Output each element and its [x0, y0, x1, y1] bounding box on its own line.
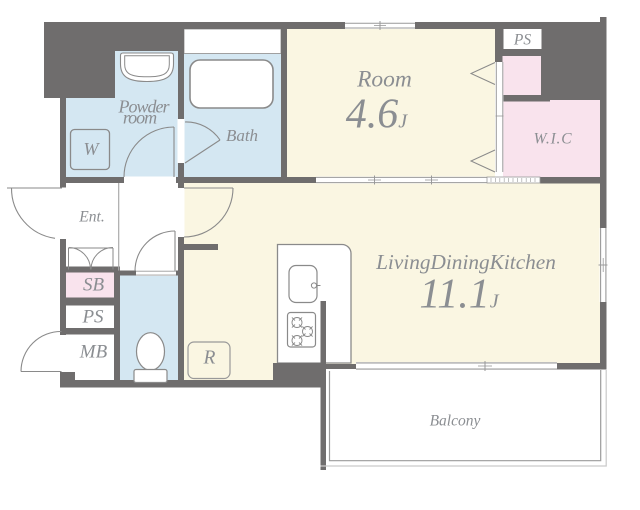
svg-text:Bath: Bath: [226, 126, 258, 145]
svg-text:R: R: [203, 348, 216, 369]
svg-text:PS: PS: [513, 32, 531, 49]
svg-text:room: room: [123, 108, 157, 128]
svg-text:11.1J: 11.1J: [419, 272, 499, 318]
svg-text:PS: PS: [81, 307, 104, 328]
svg-text:SB: SB: [83, 275, 105, 296]
svg-text:MB: MB: [79, 342, 108, 363]
svg-text:W.I.C: W.I.C: [534, 131, 573, 148]
svg-text:LivingDiningKitchen: LivingDiningKitchen: [375, 250, 556, 274]
svg-text:Ent.: Ent.: [78, 209, 104, 226]
svg-text:W: W: [84, 139, 101, 159]
svg-text:Balcony: Balcony: [430, 413, 481, 430]
svg-text:Room: Room: [356, 67, 412, 93]
